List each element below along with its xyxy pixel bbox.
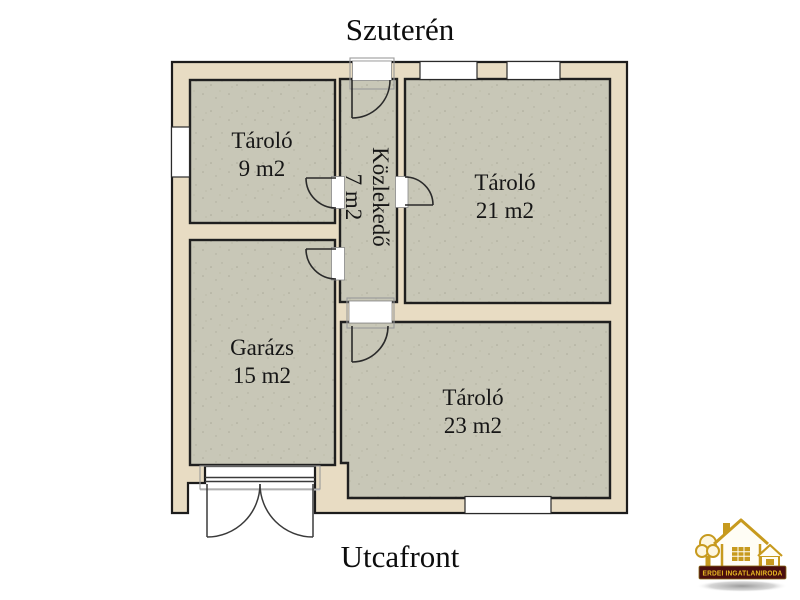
window-top-1 <box>420 62 477 80</box>
logo-house-icon <box>714 520 768 567</box>
title-utcafront: Utcafront <box>341 539 460 574</box>
room-area-tarolo-23: 23 m2 <box>444 413 502 438</box>
door-garazs-opening <box>332 248 345 281</box>
room-name-tarolo-9: Tároló <box>231 128 292 153</box>
floorplan-page: Szuterén Utcafront Tároló 9 m2 Közlekedő… <box>0 0 800 600</box>
window-left <box>172 127 190 177</box>
room-name-kozlekedo: Közlekedő <box>368 147 393 247</box>
logo-banner-text: ERDEI INGATLANIRODA <box>703 569 783 578</box>
logo-window <box>732 547 750 561</box>
title-szuteren: Szuterén <box>346 12 455 47</box>
window-top-2 <box>507 62 560 80</box>
room-tarolo-23 <box>341 322 610 498</box>
door-entry-opening <box>353 61 392 81</box>
logo-shadow <box>696 580 788 592</box>
logo-small-house-icon <box>758 545 782 567</box>
room-name-tarolo-23: Tároló <box>442 385 503 410</box>
room-area-tarolo-21: 21 m2 <box>476 198 534 223</box>
floorplan-drawing: Szuterén Utcafront Tároló 9 m2 Közlekedő… <box>0 0 800 600</box>
garage-door-left-arc <box>207 484 260 537</box>
garage-door-right-arc <box>260 484 313 537</box>
door-tarolo-23-opening <box>349 301 392 323</box>
room-name-tarolo-21: Tároló <box>474 170 535 195</box>
room-name-garazs: Garázs <box>230 335 294 360</box>
window-bottom <box>465 497 551 514</box>
garage-double-door <box>200 466 320 537</box>
agency-logo: ERDEI INGATLANIRODA <box>696 520 788 592</box>
room-area-kozlekedo: 7 m2 <box>341 174 366 221</box>
room-area-tarolo-9: 9 m2 <box>239 156 286 181</box>
room-area-garazs: 15 m2 <box>233 363 291 388</box>
logo-tree-icon <box>696 535 719 567</box>
door-tarolo-21-opening <box>396 177 409 208</box>
